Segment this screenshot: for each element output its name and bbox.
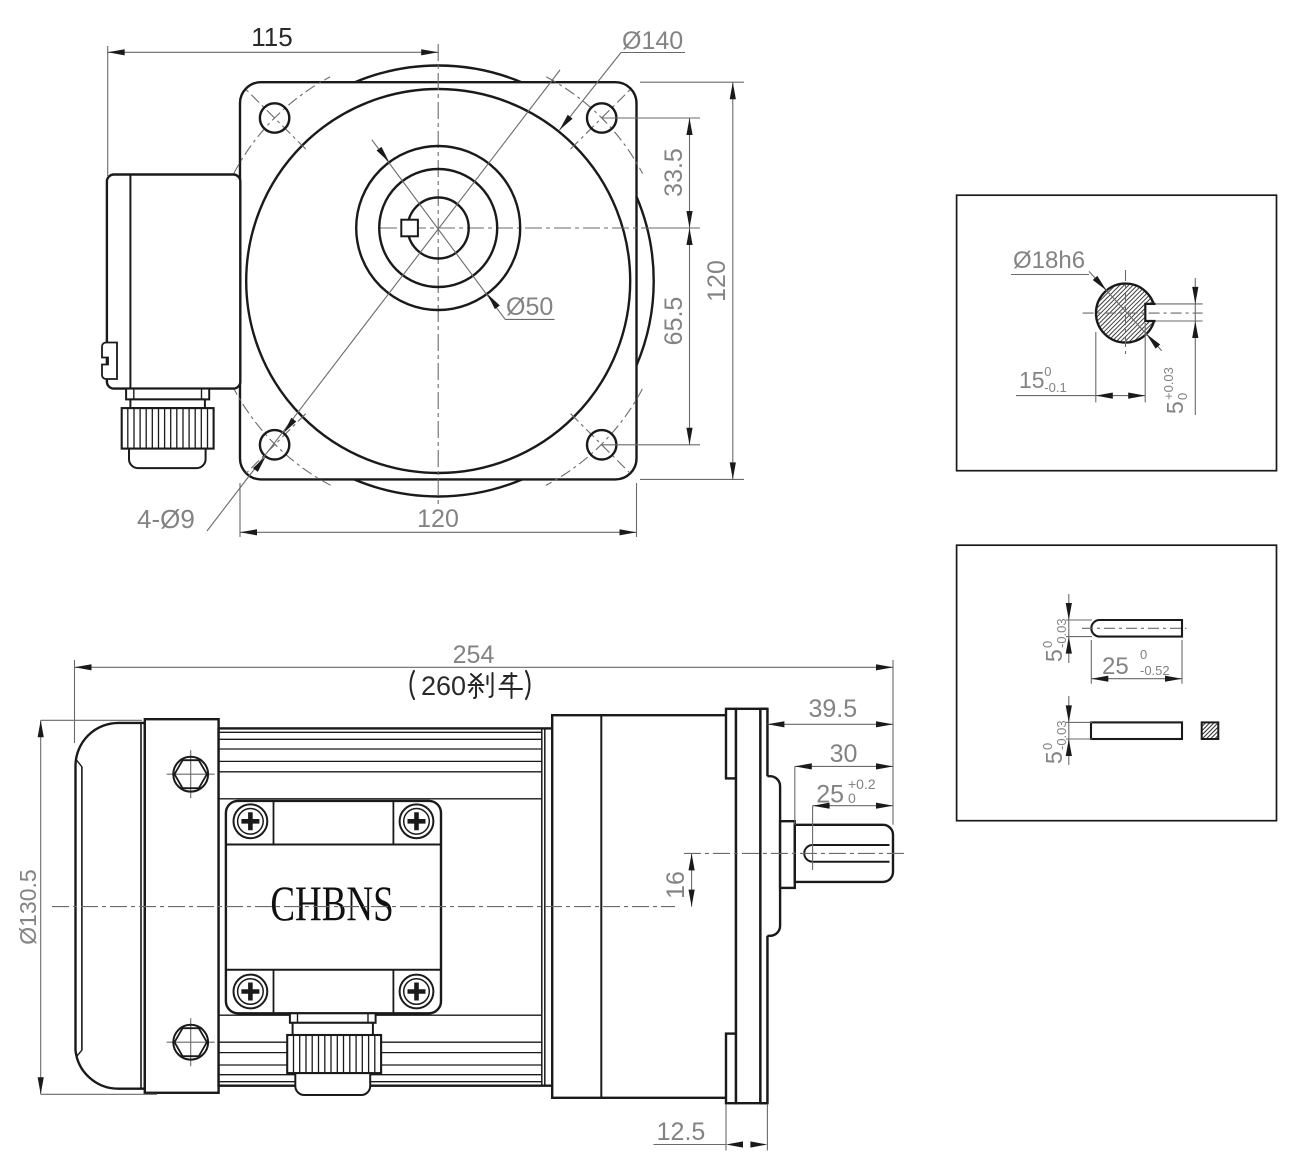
svg-text:0: 0 — [1040, 641, 1055, 648]
svg-text:Ø130.5: Ø130.5 — [15, 869, 41, 944]
svg-text:-0.52: -0.52 — [1140, 663, 1170, 678]
svg-text:-0.03: -0.03 — [1054, 618, 1069, 648]
svg-text:25: 25 — [1102, 653, 1129, 680]
svg-text:5: 5 — [1041, 751, 1067, 764]
svg-text:Ø18h6: Ø18h6 — [1013, 247, 1085, 274]
svg-text:0: 0 — [1044, 364, 1051, 379]
svg-text:120: 120 — [417, 505, 459, 533]
svg-text:33.5: 33.5 — [660, 148, 688, 197]
svg-text:-0.03: -0.03 — [1054, 720, 1069, 750]
svg-text:0: 0 — [1175, 393, 1190, 400]
svg-text:30: 30 — [830, 740, 858, 768]
svg-text:0: 0 — [1040, 743, 1055, 750]
svg-text:15: 15 — [1019, 367, 1045, 393]
svg-text:12.5: 12.5 — [657, 1118, 706, 1146]
svg-text:0: 0 — [1140, 647, 1147, 662]
svg-text:115: 115 — [251, 22, 292, 52]
svg-text:CHBNS: CHBNS — [270, 876, 393, 932]
svg-text:-0.1: -0.1 — [1044, 380, 1066, 395]
svg-text:260: 260 — [421, 671, 466, 701]
svg-text:120: 120 — [703, 260, 731, 302]
svg-text:39.5: 39.5 — [808, 695, 857, 723]
svg-text:5: 5 — [1162, 401, 1188, 414]
svg-text:5: 5 — [1041, 649, 1067, 662]
svg-text:25: 25 — [816, 781, 844, 809]
svg-text:+0.03: +0.03 — [1161, 367, 1176, 400]
svg-text:254: 254 — [453, 641, 495, 669]
svg-text:65.5: 65.5 — [660, 297, 688, 346]
svg-text:16: 16 — [662, 871, 690, 899]
svg-text:Ø50: Ø50 — [506, 293, 553, 321]
svg-text:4-Ø9: 4-Ø9 — [137, 504, 195, 534]
svg-text:Ø140: Ø140 — [622, 27, 683, 55]
svg-text:0: 0 — [848, 790, 856, 806]
